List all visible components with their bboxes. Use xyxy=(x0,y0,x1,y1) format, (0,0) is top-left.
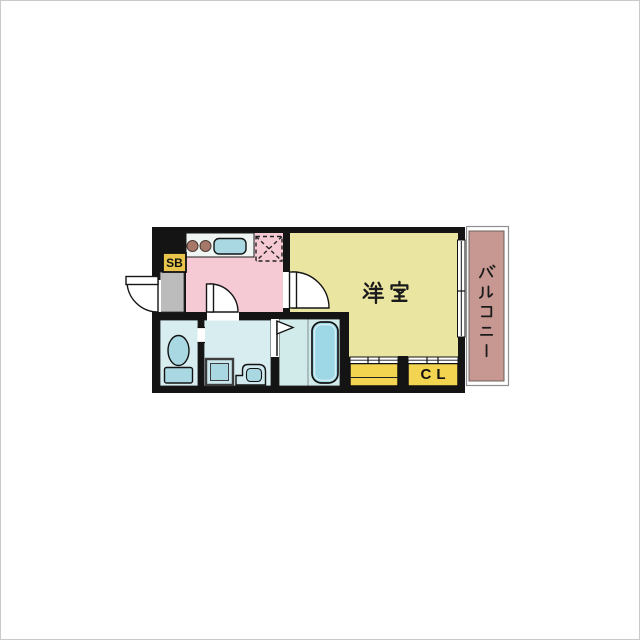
closet-divider-wall xyxy=(398,356,408,386)
balcony-window-icon xyxy=(458,240,466,337)
storage-box xyxy=(350,364,398,387)
shoe-box-label: SB xyxy=(163,253,186,272)
closet-label: CL xyxy=(408,363,458,386)
washroom-doorway-gap xyxy=(207,312,239,321)
entrance-door-icon xyxy=(126,277,158,313)
toilet-doorway-gap xyxy=(198,327,206,343)
floor-plan-image: SB CL 洋室 バルコニー xyxy=(0,0,640,640)
washing-machine-icon xyxy=(206,359,233,385)
bathtub-icon xyxy=(312,322,338,383)
floor-plan-drawing xyxy=(0,0,640,640)
kitchen-sink-icon xyxy=(214,239,246,255)
entrance-floor xyxy=(160,272,184,312)
